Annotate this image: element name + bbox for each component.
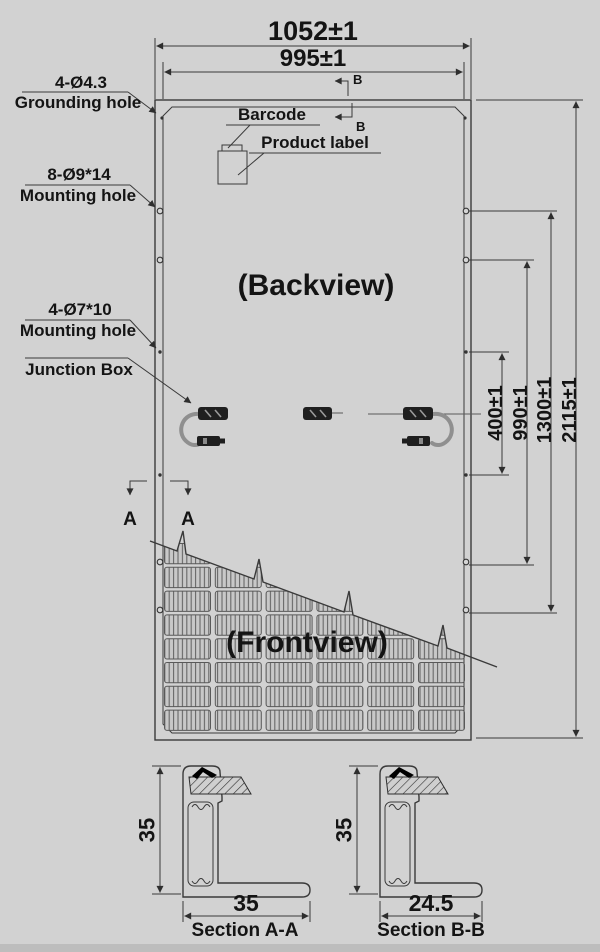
section-aa-title: Section A-A — [192, 920, 299, 941]
solar-cell — [419, 710, 465, 730]
section-bb-title: Section B-B — [377, 920, 485, 941]
solar-cell — [215, 591, 261, 611]
solar-cell — [165, 591, 211, 611]
junction-boxes — [181, 407, 481, 446]
section-a-mark-right: A — [181, 509, 195, 530]
solar-cell — [165, 567, 211, 587]
dim-inner-width: 995±1 — [280, 45, 347, 72]
dim-400: 400±1 — [485, 385, 507, 440]
connector-left — [197, 436, 225, 446]
solar-cell — [368, 544, 414, 564]
glass-edge-aa — [189, 777, 251, 794]
solar-cell — [419, 686, 465, 706]
section-b-mark-bottom: B — [356, 119, 365, 134]
right-dimensions: 400±1 990±1 1300±1 2115±1 — [469, 100, 583, 738]
section-aa: 35 35 Section A-A — [135, 766, 310, 941]
mounting-hole-8-spec: 8-Ø9*14 — [47, 165, 111, 184]
solar-cell — [165, 615, 211, 635]
mounting-hole-8-label: Mounting hole — [20, 186, 136, 205]
top-dimensions: 1052±1 995±1 — [155, 16, 471, 99]
solar-cell — [368, 663, 414, 683]
frame-cavity-bb — [385, 802, 410, 886]
solar-cell — [317, 663, 363, 683]
section-a-markers: A A — [123, 481, 195, 530]
solar-cell — [266, 591, 312, 611]
junction-box-left — [198, 407, 228, 420]
bottom-shade — [0, 944, 600, 952]
solar-cell — [215, 686, 261, 706]
product-label-label: Product label — [261, 133, 369, 152]
solar-cell — [215, 544, 261, 564]
section-b-mark-top: B — [353, 72, 362, 87]
solar-cell — [215, 663, 261, 683]
dim-bb-height: 35 — [332, 818, 357, 842]
grounding-hole-top-left — [160, 116, 163, 119]
frontview-label: (Frontview) — [226, 626, 388, 659]
solar-cell — [165, 710, 211, 730]
dim-aa-height: 35 — [135, 818, 160, 842]
section-bb: 35 24.5 Section B-B — [332, 766, 485, 941]
junction-box-callout: Junction Box — [25, 358, 191, 403]
grounding-hole-label: Grounding hole — [15, 93, 142, 112]
solar-cell — [317, 544, 363, 564]
mounting-hole-8-callout: 8-Ø9*14 Mounting hole — [20, 165, 155, 207]
solar-cell — [368, 710, 414, 730]
drawing-canvas: 1052±1 995±1 B B Barcode Product label 4… — [0, 0, 600, 952]
junction-box-right — [403, 407, 433, 420]
solar-cell — [419, 663, 465, 683]
dim-bb-width: 24.5 — [409, 890, 454, 916]
solar-cell — [317, 567, 363, 587]
section-a-mark-left: A — [123, 509, 137, 530]
product-label-box — [218, 145, 247, 184]
junction-box-label: Junction Box — [25, 360, 133, 379]
section-b-markers: B B — [335, 72, 365, 134]
solar-cell — [165, 686, 211, 706]
glass-edge-bb — [386, 777, 448, 794]
solar-cell — [419, 567, 465, 587]
mounting-hole-4-label: Mounting hole — [20, 321, 136, 340]
solar-cell — [317, 686, 363, 706]
solar-cell — [266, 686, 312, 706]
solar-cell — [419, 544, 465, 564]
barcode-label: Barcode — [238, 105, 306, 124]
product-label-callout: Product label — [238, 133, 381, 175]
solar-cell — [266, 544, 312, 564]
grounding-hole-top-right — [463, 116, 466, 119]
solar-cell — [266, 710, 312, 730]
solar-cell — [368, 567, 414, 587]
solar-cell — [165, 663, 211, 683]
solar-module-drawing: 1052±1 995±1 B B Barcode Product label 4… — [0, 0, 600, 952]
dim-990: 990±1 — [510, 385, 532, 440]
solar-cell — [368, 591, 414, 611]
solar-cell — [165, 639, 211, 659]
solar-cell — [317, 710, 363, 730]
mounting-hole-4-spec: 4-Ø7*10 — [48, 300, 111, 319]
dim-aa-width: 35 — [233, 890, 259, 916]
solar-cell — [266, 663, 312, 683]
cable-right — [432, 414, 452, 445]
solar-cell — [317, 591, 363, 611]
solar-cell — [419, 591, 465, 611]
backview-label: (Backview) — [238, 269, 395, 302]
dim-overall-width: 1052±1 — [268, 16, 358, 46]
dim-1300: 1300±1 — [534, 377, 556, 444]
junction-box-middle — [303, 407, 343, 420]
solar-cell — [266, 567, 312, 587]
grounding-hole-spec: 4-Ø4.3 — [55, 73, 107, 92]
dim-2115: 2115±1 — [559, 377, 581, 443]
solar-cell — [215, 710, 261, 730]
frame-cavity-aa — [188, 802, 213, 886]
solar-cell — [368, 686, 414, 706]
connector-right — [402, 436, 430, 446]
grounding-hole-callout: 4-Ø4.3 Grounding hole — [15, 73, 156, 113]
mounting-hole-4-callout: 4-Ø7*10 Mounting hole — [20, 300, 156, 348]
